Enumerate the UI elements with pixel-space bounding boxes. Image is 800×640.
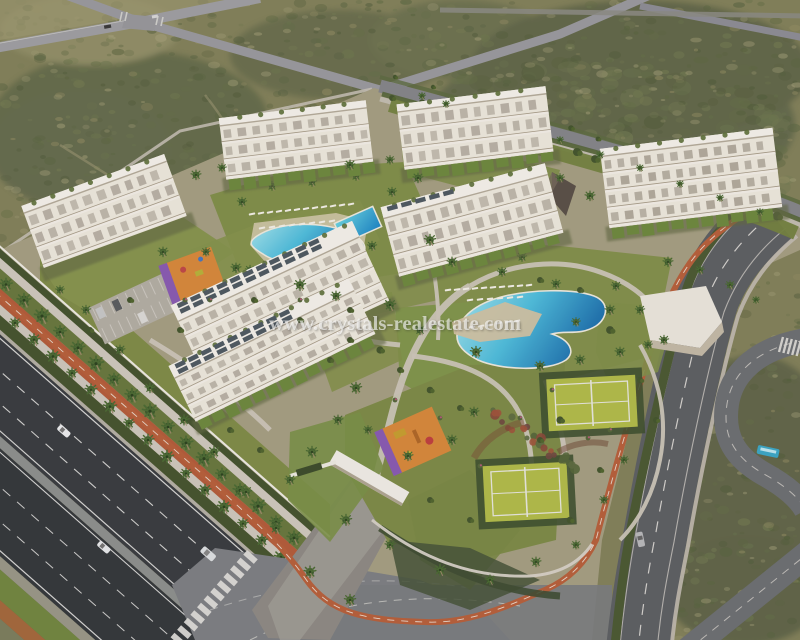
svg-text:www.crystals-realestate.com: www.crystals-realestate.com bbox=[269, 313, 521, 335]
